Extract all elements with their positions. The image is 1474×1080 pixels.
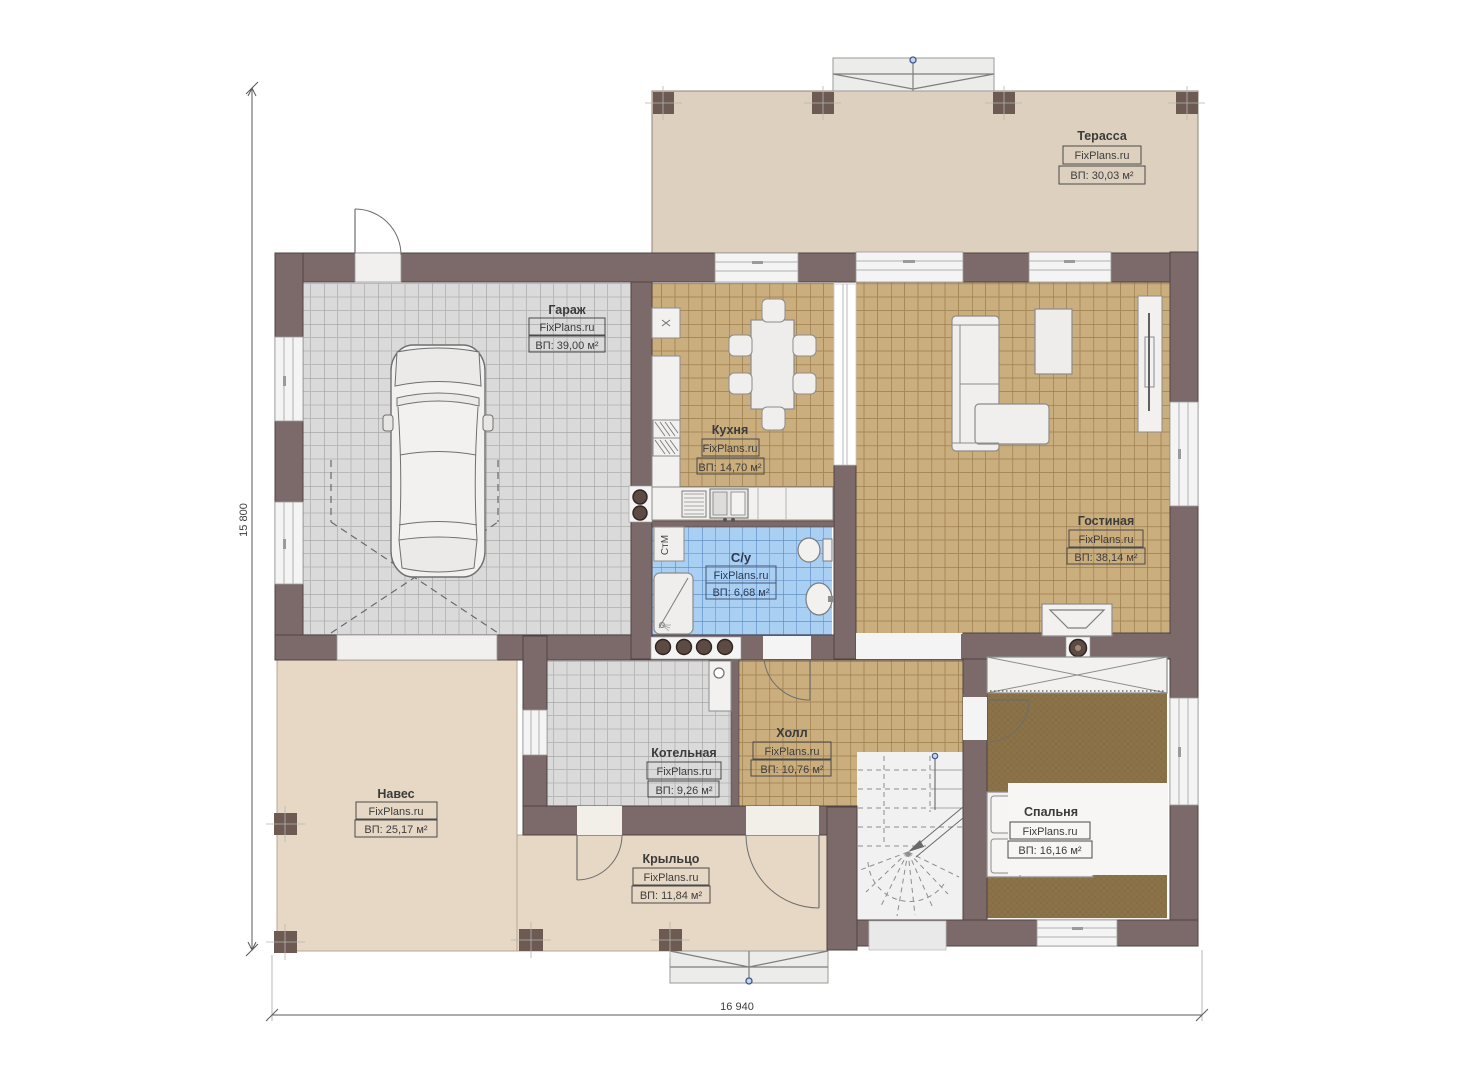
svg-text:Крыльцо: Крыльцо <box>643 852 700 866</box>
svg-text:FixPlans.ru: FixPlans.ru <box>643 872 698 884</box>
svg-text:ВП: 25,17 м²: ВП: 25,17 м² <box>364 824 428 836</box>
svg-text:FixPlans.ru: FixPlans.ru <box>1078 534 1133 546</box>
svg-text:СтМ: СтМ <box>660 535 671 555</box>
svg-text:ВП: 16,16 м²: ВП: 16,16 м² <box>1018 845 1082 857</box>
svg-text:FixPlans.ru: FixPlans.ru <box>656 766 711 778</box>
svg-text:FixPlans.ru: FixPlans.ru <box>539 322 594 334</box>
svg-text:ВП: 9,26 м²: ВП: 9,26 м² <box>655 785 712 797</box>
svg-text:ВП: 11,84 м²: ВП: 11,84 м² <box>640 890 703 902</box>
svg-text:16 940: 16 940 <box>720 1001 754 1013</box>
svg-text:Терасса: Терасса <box>1077 129 1128 143</box>
svg-text:С/у: С/у <box>731 550 752 565</box>
svg-text:FixPlans.ru: FixPlans.ru <box>368 806 423 818</box>
svg-text:ВП: 38,14 м²: ВП: 38,14 м² <box>1074 552 1138 564</box>
svg-text:Спальня: Спальня <box>1024 805 1078 819</box>
svg-text:Холл: Холл <box>776 726 807 740</box>
svg-text:ВП: 39,00 м²: ВП: 39,00 м² <box>535 340 599 352</box>
svg-text:ВП: 14,70 м²: ВП: 14,70 м² <box>698 462 762 474</box>
svg-text:ВП: 10,76 м²: ВП: 10,76 м² <box>760 764 824 776</box>
svg-text:FixPlans.ru: FixPlans.ru <box>702 443 757 455</box>
svg-text:Кухня: Кухня <box>712 423 749 437</box>
svg-text:Котельная: Котельная <box>651 746 716 760</box>
svg-text:FixPlans.ru: FixPlans.ru <box>1074 150 1129 162</box>
svg-text:Навес: Навес <box>377 787 414 801</box>
svg-text:ВП: 6,68 м²: ВП: 6,68 м² <box>712 587 769 599</box>
svg-text:Гостиная: Гостиная <box>1078 514 1135 528</box>
svg-text:ВП: 30,03 м²: ВП: 30,03 м² <box>1070 170 1134 182</box>
svg-text:Гараж: Гараж <box>548 303 585 317</box>
svg-text:FixPlans.ru: FixPlans.ru <box>713 570 768 582</box>
svg-text:15 800: 15 800 <box>238 503 250 537</box>
svg-text:FixPlans.ru: FixPlans.ru <box>1022 826 1077 838</box>
svg-text:FixPlans.ru: FixPlans.ru <box>764 746 819 758</box>
